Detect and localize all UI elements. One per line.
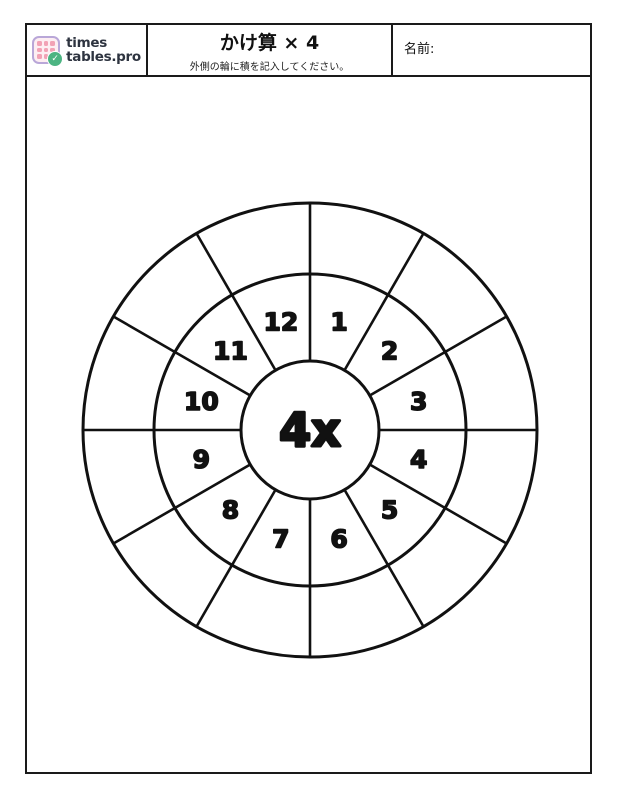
worksheet-page: ✓ times tables.pro かけ算 × 4 外側の輪に積を記入してくだ… xyxy=(0,0,618,800)
inner-ring-number: 2 xyxy=(381,336,398,365)
worksheet-border-box: ✓ times tables.pro かけ算 × 4 外側の輪に積を記入してくだ… xyxy=(25,23,592,774)
inner-ring-number: 3 xyxy=(410,387,427,416)
logo-line1: times xyxy=(66,36,141,50)
grid-calendar-icon: ✓ xyxy=(32,36,60,64)
page-title: かけ算 × 4 xyxy=(220,28,319,55)
inner-ring-number: 9 xyxy=(193,445,210,474)
checkmark-icon: ✓ xyxy=(47,51,63,67)
header: ✓ times tables.pro かけ算 × 4 外側の輪に積を記入してくだ… xyxy=(27,25,590,77)
multiplication-wheel: 1234567891011124x xyxy=(75,195,545,665)
name-label: 名前: xyxy=(404,42,434,57)
wheel-center-label: 4x xyxy=(279,403,341,457)
page-subtitle: 外側の輪に積を記入してください。 xyxy=(190,58,349,73)
inner-ring-number: 8 xyxy=(222,496,239,525)
inner-ring-number: 6 xyxy=(330,525,347,554)
inner-ring-number: 11 xyxy=(213,336,248,365)
inner-ring-number: 10 xyxy=(184,387,219,416)
inner-ring-number: 4 xyxy=(410,445,427,474)
inner-ring-number: 1 xyxy=(330,307,347,336)
logo-line2: tables.pro xyxy=(66,50,141,64)
logo-wordmark: times tables.pro xyxy=(66,36,141,64)
logo: ✓ times tables.pro xyxy=(27,25,148,75)
inner-ring-number: 12 xyxy=(263,307,298,336)
inner-ring-number: 5 xyxy=(381,496,398,525)
name-field: 名前: xyxy=(393,25,590,75)
inner-ring-number: 7 xyxy=(272,525,289,554)
title-block: かけ算 × 4 外側の輪に積を記入してください。 xyxy=(148,25,393,75)
